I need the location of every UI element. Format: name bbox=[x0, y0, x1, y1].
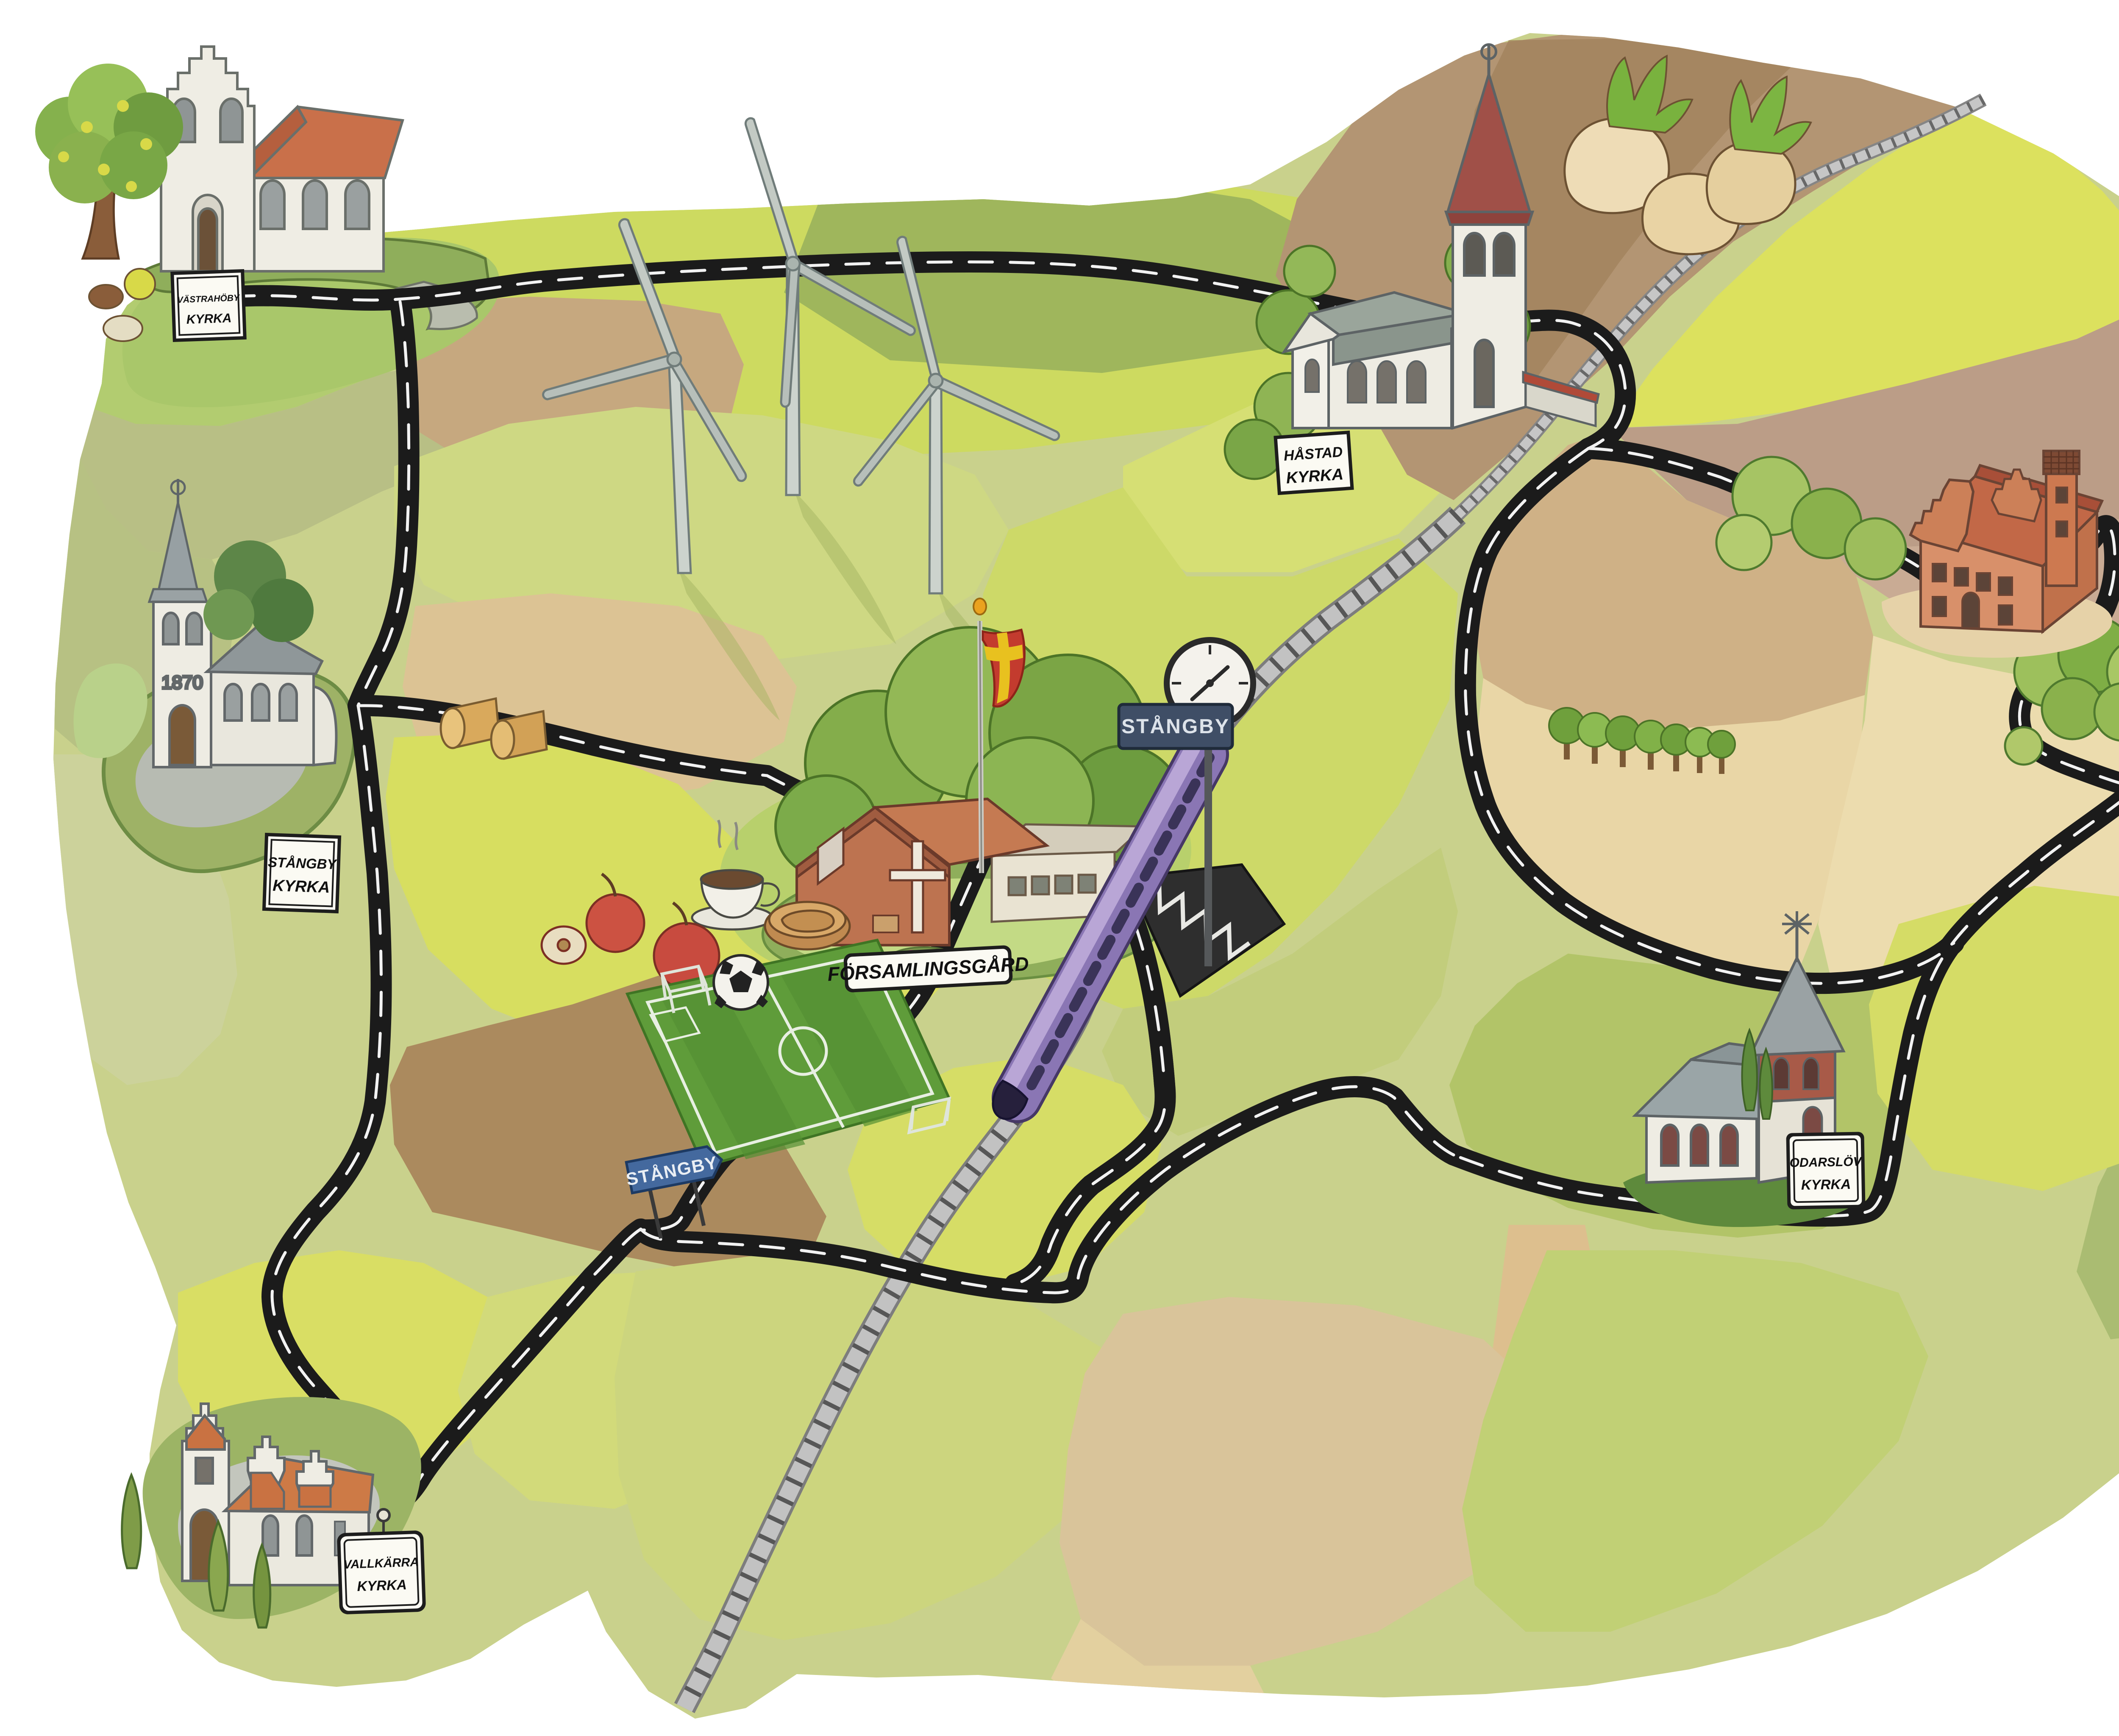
svg-text:KYRKA: KYRKA bbox=[1801, 1176, 1851, 1193]
svg-text:1870: 1870 bbox=[161, 672, 203, 693]
svg-text:ODARSLÖV: ODARSLÖV bbox=[1789, 1155, 1863, 1170]
svg-text:VALLKÄRRA: VALLKÄRRA bbox=[343, 1555, 419, 1572]
svg-text:KYRKA: KYRKA bbox=[357, 1577, 407, 1594]
svg-text:KYRKA: KYRKA bbox=[273, 877, 331, 897]
svg-text:STÅNGBY: STÅNGBY bbox=[268, 854, 338, 872]
svg-text:STÅNGBY: STÅNGBY bbox=[1121, 715, 1230, 738]
svg-text:KYRKA: KYRKA bbox=[186, 311, 232, 327]
